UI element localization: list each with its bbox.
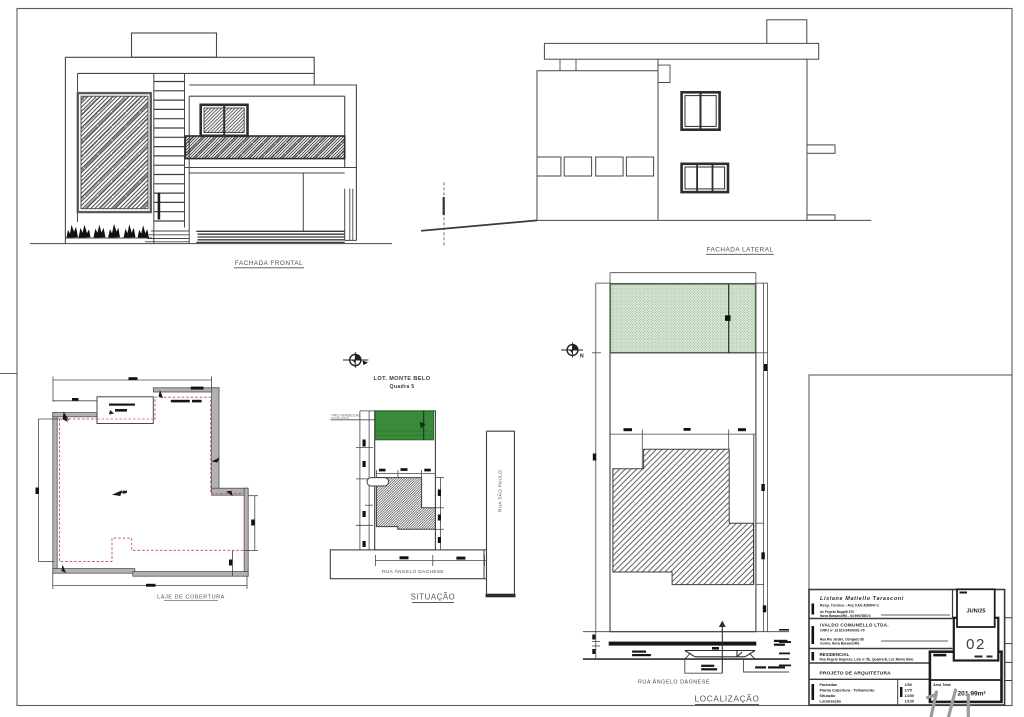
- svg-text:RUA SÃO PAULO: RUA SÃO PAULO: [497, 470, 503, 512]
- svg-text:Rua Ângelo Dagnese, Lote nº 5b: Rua Ângelo Dagnese, Lote nº 5b, Quadra B…: [820, 657, 914, 662]
- svg-text:PROJETO DE ARQUITETURA: PROJETO DE ARQUITETURA: [820, 671, 892, 677]
- svg-text:Resp. Técnico - Arq CAU A999: Resp. Técnico - Arq CAU A99947-1: [820, 604, 879, 608]
- svg-text:1/50: 1/50: [905, 683, 912, 687]
- svg-text:RUA ÂNGELO DAGNESE: RUA ÂNGELO DAGNESE: [638, 679, 710, 686]
- svg-text:Lislane Matiello Tarasconi: Lislane Matiello Tarasconi: [820, 596, 904, 602]
- svg-text:201,99m²: 201,99m²: [958, 691, 987, 698]
- svg-text:RESIDENCIAL: RESIDENCIAL: [820, 652, 850, 657]
- svg-text:JUN/25: JUN/25: [967, 609, 986, 615]
- svg-text:LAJE DE COBERTURA: LAJE DE COBERTURA: [157, 595, 225, 601]
- svg-text:SITUAÇÃO: SITUAÇÃO: [411, 593, 456, 602]
- svg-text:IVALDO COMUNELLO LTDA.: IVALDO COMUNELLO LTDA.: [820, 623, 889, 628]
- svg-text:Quadra 5: Quadra 5: [390, 384, 415, 390]
- svg-text:LOCALIZAÇÃO: LOCALIZAÇÃO: [694, 694, 759, 704]
- svg-text:FACHADA FRONTAL: FACHADA FRONTAL: [235, 260, 303, 267]
- svg-text:Nova Bassano/RS - 54 999755574: Nova Bassano/RS - 54 999755574: [820, 614, 871, 618]
- svg-text:Área Total: Área Total: [933, 682, 950, 687]
- svg-text:1/75: 1/75: [905, 689, 912, 693]
- svg-text:1/100: 1/100: [905, 700, 915, 704]
- svg-text:CNPJ nº 13.610.940/0001-70: CNPJ nº 13.610.940/0001-70: [820, 628, 865, 632]
- svg-text:Situação: Situação: [820, 694, 837, 698]
- svg-text:FACHADA LATERAL: FACHADA LATERAL: [706, 247, 773, 254]
- svg-text:RUA ÂNGELO DAGHESE: RUA ÂNGELO DAGHESE: [382, 568, 444, 574]
- svg-text:PRQ VERDE/LAZ: PRQ VERDE/LAZ: [332, 414, 362, 418]
- svg-text:LOT. MONTE BELO: LOT. MONTE BELO: [374, 376, 431, 382]
- svg-text:02: 02: [966, 636, 986, 653]
- svg-text:Fachadas: Fachadas: [820, 683, 838, 687]
- svg-text:N: N: [580, 354, 584, 360]
- svg-text:1/250: 1/250: [905, 694, 915, 698]
- svg-text:Centro, Nova Bassano/RS: Centro, Nova Bassano/RS: [820, 641, 859, 645]
- svg-text:Localização: Localização: [820, 700, 842, 704]
- svg-text:Planta Cobertura - Telhament: Planta Cobertura - Telhamento: [820, 689, 876, 693]
